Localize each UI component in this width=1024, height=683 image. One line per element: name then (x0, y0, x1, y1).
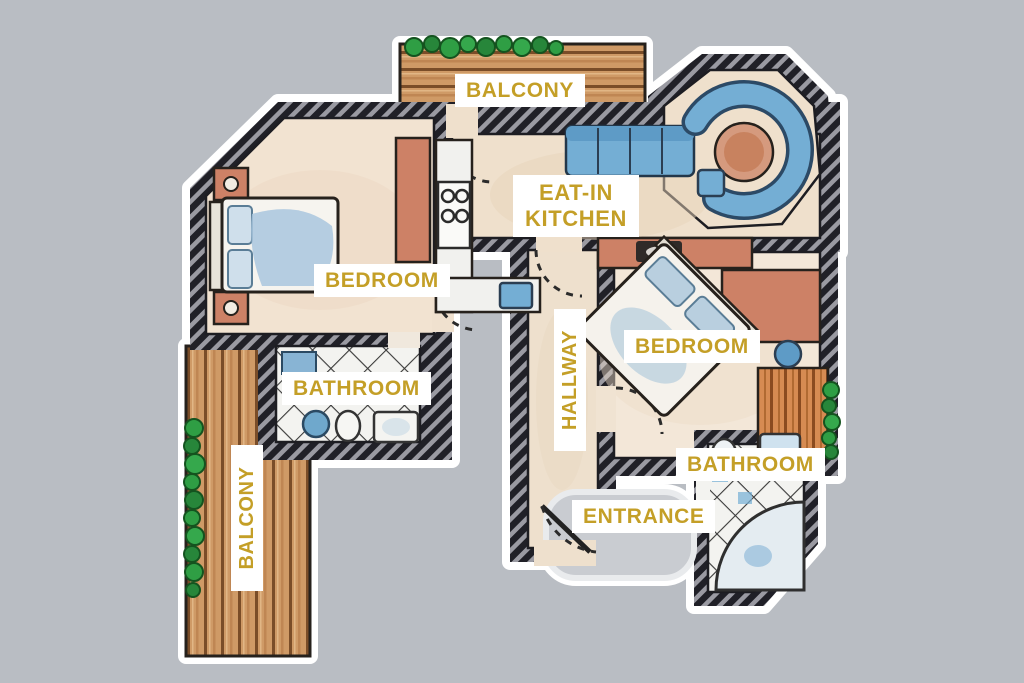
room-label-eat-in-kitchen-line1: EAT-IN (525, 180, 627, 206)
wardrobe-left (396, 138, 430, 262)
bedroom-right-sink (775, 341, 801, 367)
room-label-bathroom-right: BATHROOM (676, 448, 825, 481)
room-label-balcony-top: BALCONY (455, 74, 585, 107)
room-label-balcony-left: BALCONY (231, 445, 263, 591)
kitchen-sofa (566, 126, 694, 176)
room-label-hallway: HALLWAY (554, 309, 586, 451)
stove (438, 182, 470, 248)
room-label-eat-in-kitchen-line2: KITCHEN (525, 206, 627, 232)
floor-plan-page: BALCONY EAT-IN KITCHEN BEDROOM BATHROOM … (0, 0, 1024, 683)
room-label-bedroom-left: BEDROOM (314, 264, 450, 297)
room-label-bedroom-right: BEDROOM (624, 330, 760, 363)
room-label-entrance: ENTRANCE (572, 500, 715, 533)
room-label-bathroom-left: BATHROOM (282, 372, 431, 405)
kitchen-sink (500, 283, 532, 308)
room-label-eat-in-kitchen: EAT-IN KITCHEN (513, 175, 639, 237)
